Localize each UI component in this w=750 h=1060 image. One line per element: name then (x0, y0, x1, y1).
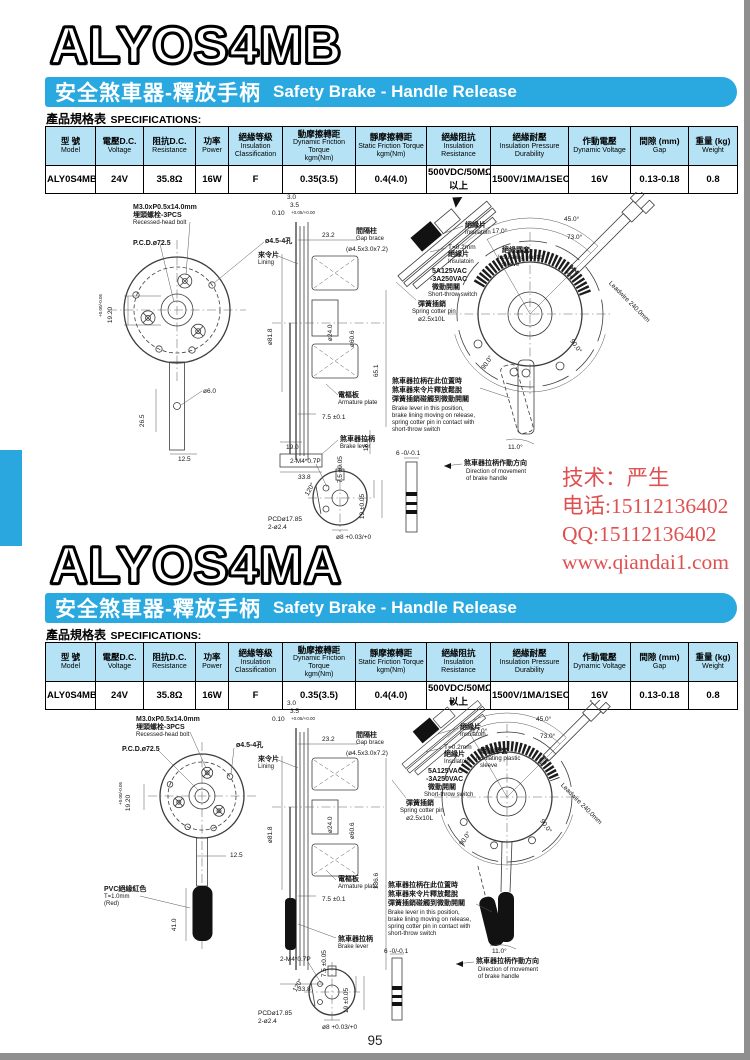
col-static-torque: 靜摩擦轉距Static Friction Torquekgm(Nm) (356, 127, 427, 166)
spec-label-zh: 產品規格表 (46, 112, 106, 126)
cell-static-torque: 0.4(4.0) (356, 166, 427, 194)
col-static-torque: 靜摩擦轉距Static Friction Torquekgm(Nm) (356, 643, 427, 682)
label-switch-rating-1: 5A125VAC (432, 268, 467, 276)
label-direction-en2: of brake handle (478, 974, 519, 981)
label-brake-lever-zh: 煞車器拉柄 (340, 436, 375, 444)
col-insulation-pressure: 絕緣耐壓Insulation Pressure Durability (491, 643, 569, 682)
cell-power: 16W (196, 166, 229, 194)
col-model: 型 號Model (46, 643, 96, 682)
tol-0-10: +0.05/+0.00 (291, 211, 315, 216)
label-sleeve-zh: 絕緣膠套 (502, 247, 530, 255)
dim-7-5: 7.5 ±0.1 (322, 896, 345, 903)
label-switch-rating-1: 5A125VAC (428, 768, 463, 776)
note-zh-2: 煞車器來令片釋放鬆脫 (388, 891, 458, 899)
label-holes: ø4.5-4孔 (265, 238, 292, 246)
col-dynamic-voltage: 作動電壓Dynamic Voltage (569, 127, 631, 166)
dim-65-1: 65.1 (373, 364, 380, 377)
dim-hub-pcd: PCDø17.85 (268, 516, 302, 523)
dim-12-5: 12.5 (230, 852, 243, 859)
page-title-alyos4mb: ALYOS4MB (50, 16, 342, 76)
note-zh-3: 彈簧插銷碰觸到微動開關 (388, 900, 465, 908)
dim-19-0: 19.0 (286, 444, 299, 451)
page-title-alyos4ma: ALYOS4MA (50, 536, 342, 596)
label-bolt-spec: M3.0xP0.5x14.0mm (136, 716, 200, 724)
col-gap: 間隙 (mm)Gap (631, 643, 689, 682)
label-armature-en: Armature plate (338, 400, 377, 407)
col-power: 功率Power (196, 127, 229, 166)
col-resistance: 阻抗D.C.Resistance (144, 127, 196, 166)
label-cotter-zh: 彈簧插銷 (406, 800, 434, 808)
tol-19-20: +0.00/-0.05 (119, 782, 124, 805)
dim-3-0: 3.0 (287, 194, 296, 201)
col-insulation-pressure: 絕緣耐壓Insulation Pressure Durability (491, 127, 569, 166)
label-switch-en: Short-throw switch (428, 292, 477, 299)
dim-26-5: 26.5 (139, 414, 146, 427)
dim-12-5: 12.5 (178, 456, 191, 463)
label-switch-en: Short-throw switch (424, 792, 473, 799)
dim-7-5: 7.5 ±0.1 (322, 414, 345, 421)
note-en-2: brake lining moving on release, (392, 413, 475, 420)
note-en-4: short-throw switch (392, 427, 440, 434)
col-insulation-class: 絕緣等級Insulation Classification (229, 127, 283, 166)
label-t02-zh: 絕緣片 (444, 751, 465, 759)
label-lining-en: Lining (258, 764, 274, 771)
spec-label2-zh: 產品規格表 (46, 628, 106, 642)
dim-hub-7-5: 7.5 ±0.05 (321, 950, 328, 977)
section-banner-2: 安全煞車器-釋放手柄 Safety Brake - Handle Release (45, 593, 737, 623)
cell-dynamic-torque: 0.35(3.5) (283, 166, 356, 194)
note-en-3: spring cotter pin in contact with (388, 924, 470, 931)
label-sleeve-en2: sleeve (502, 262, 519, 269)
page-side-tab (0, 450, 22, 546)
dim-19-20: 19.20 (107, 307, 114, 323)
label-switch-zh: 微動開關 (432, 284, 460, 292)
cell-gap: 0.13-0.18 (631, 166, 689, 194)
label-switch-rating-2: -3A250VAC (426, 776, 463, 784)
dim-60-6: ø60.6 (349, 331, 356, 348)
label-cotter-zh: 彈簧插銷 (418, 301, 446, 309)
tol-0-10: +0.05/+0.00 (291, 717, 315, 722)
contact-watermark: 技术：严生 电话:15112136402 QQ:15112136402 www.… (562, 464, 729, 576)
dim-hub-pcd: PCDø17.85 (258, 1010, 292, 1017)
label-direction-zh: 煞車器拉柄作動方向 (476, 958, 539, 966)
note-en-1: Brake lever in this position, (388, 910, 460, 917)
dim-shaft-6: 6 -0/-0.1 (396, 450, 420, 457)
label-brake-lever-en: Brake lever (338, 944, 368, 951)
dim-24-0: ø24.0 (327, 325, 334, 342)
dim-hub-m4: 2-M4*0.7P (290, 458, 321, 465)
catalog-page: ALYOS4MB 安全煞車器-釋放手柄 Safety Brake - Handl… (0, 0, 750, 1060)
note-zh-2: 煞車器來令片釋放鬆脫 (392, 387, 462, 395)
label-gap-brace-zh: 間隔柱 (356, 732, 377, 740)
dim-60-6: ø60.6 (349, 823, 356, 840)
cell-voltage: 24V (96, 166, 144, 194)
label-bolt-en: Recessed-head bolt (136, 732, 189, 739)
label-pvc-color: (Red) (104, 901, 119, 908)
label-pcd: P.C.D.ø72.5 (133, 240, 171, 248)
label-t02-en: Insulatoin (444, 759, 470, 766)
angle-17: 17.0° (472, 728, 487, 735)
label-pcd: P.C.D.ø72.5 (122, 746, 160, 754)
angle-17: 17.0° (492, 228, 507, 235)
contact-tech: 技术：严生 (562, 464, 729, 492)
angle-45: 45.0° (564, 216, 579, 223)
label-brake-lever-en: Brake lever (340, 444, 370, 451)
banner-title-en: Safety Brake - Handle Release (273, 82, 517, 102)
dim-0-10: 0.10 (272, 210, 285, 217)
label-holes: ø4.5-4孔 (236, 742, 263, 750)
label-bolt-zh: 埋頭螺栓-3PCS (133, 212, 182, 220)
label-insulation-zh: 絕緣片 (465, 222, 486, 230)
dim-cotter-size: ø2.5x10L (406, 815, 433, 822)
dim-24-0: ø24.0 (327, 817, 334, 834)
col-insulation-class: 絕緣等級Insulation Classification (229, 643, 283, 682)
angle-11: 11.0° (508, 444, 523, 451)
dim-81-8: ø81.8 (267, 329, 274, 346)
dim-hub-holes: 2-ø2.4 (258, 1018, 277, 1025)
dim-23-2: 23.2 (322, 232, 335, 239)
label-gap-brace-zh: 間隔柱 (356, 228, 377, 236)
label-lining-zh: 來令片 (258, 252, 279, 260)
dim-3-5: 3.5 (290, 202, 299, 209)
col-power: 功率Power (196, 643, 229, 682)
cell-weight: 0.8 (689, 166, 738, 194)
label-armature-zh: 電樞板 (338, 392, 359, 400)
label-lining-en: Lining (258, 260, 274, 267)
dim-81-8: ø81.8 (267, 827, 274, 844)
page-number: 95 (0, 1033, 750, 1048)
label-gap-brace-en: Gap brace (356, 236, 384, 243)
label-sleeve-en1: Insulating plastic (498, 255, 542, 262)
cell-insulation-class: F (229, 166, 283, 194)
col-dynamic-voltage: 作動電壓Dynamic Voltage (569, 643, 631, 682)
label-armature-zh: 電樞板 (338, 876, 359, 884)
section-banner: 安全煞車器-釋放手柄 Safety Brake - Handle Release (45, 77, 737, 107)
dim-hole-6: ø6.0 (203, 388, 216, 395)
label-sleeve-en1: Insulating plastic (476, 756, 520, 763)
technical-drawing-alyos4ma: M3.0xP0.5x14.0mm 埋頭螺栓-3PCS Recessed-head… (40, 700, 740, 1032)
cell-insulation-pressure: 1500V/1MA/1SEC (491, 166, 569, 194)
label-t02-en: Insulatoin (448, 259, 474, 266)
col-model: 型 號Model (46, 127, 96, 166)
label-pvc-zh: PVC絕緣紅色 (104, 886, 146, 894)
dim-3-5: 3.5 (290, 708, 299, 715)
col-resistance: 阻抗D.C.Resistance (144, 643, 196, 682)
label-direction-en2: of brake handle (466, 476, 507, 483)
note-en-3: spring cotter pin in contact with (392, 420, 474, 427)
spec-table-1: 型 號Model 電壓D.C.Voltage 阻抗D.C.Resistance … (45, 126, 738, 194)
dim-gap-brace-size: (ø4.5x3.0x7.2) (346, 246, 388, 253)
label-bolt-spec: M3.0xP0.5x14.0mm (133, 204, 197, 212)
dim-shaft-6: 6 -0/-0.1 (384, 948, 408, 955)
spec-label2-en: SPECIFICATIONS: (110, 630, 201, 642)
note-zh-1: 煞車器拉柄在此位置時 (392, 378, 462, 386)
col-voltage: 電壓D.C.Voltage (96, 643, 144, 682)
col-gap: 間隙 (mm)Gap (631, 127, 689, 166)
banner-title-zh: 安全煞車器-釋放手柄 (55, 77, 261, 107)
label-insulation-en: Insulatoin (465, 230, 491, 237)
label-sleeve-zh: 絕緣膠套 (480, 748, 508, 756)
dim-cotter-size: ø2.5x10L (418, 316, 445, 323)
contact-qq: QQ:15112136402 (562, 520, 729, 548)
banner2-title-en: Safety Brake - Handle Release (273, 598, 517, 618)
label-brake-lever-zh: 煞車器拉柄 (338, 936, 373, 944)
dim-hub-holes: 2-ø2.4 (268, 524, 287, 531)
dim-hub-bore: ø8 +0.03/+0 (322, 1024, 357, 1031)
label-switch-rating-2: -3A250VAC (430, 276, 467, 284)
note-en-2: brake lining moving on release, (388, 917, 471, 924)
col-dynamic-torque: 動摩擦轉距Dynamic Friction Torquekgm(Nm) (283, 127, 356, 166)
dim-0-10: 0.10 (272, 716, 285, 723)
label-lining-zh: 來令片 (258, 756, 279, 764)
page-edge-right (744, 0, 750, 1060)
label-bolt-en: Recessed-head bolt (133, 220, 186, 227)
cell-insulation-resistance: 500VDC/50MΩ以上 (427, 166, 491, 194)
cell-resistance: 35.8Ω (144, 166, 196, 194)
label-pvc-thickness: T=1.0mm (104, 894, 130, 901)
tol-19-20: +0.00/-0.05 (99, 294, 104, 317)
angle-73: 73.0° (540, 733, 555, 740)
dim-19-20: 19.20 (125, 795, 132, 811)
label-armature-en: Armature plate (338, 884, 377, 891)
label-bolt-zh: 埋頭螺栓-3PCS (136, 724, 185, 732)
label-sleeve-en2: sleeve (480, 763, 497, 770)
spec-label-en: SPECIFICATIONS: (110, 114, 201, 126)
label-gap-brace-en: Gap brace (356, 740, 384, 747)
dim-hub-7-5: 7.5 ±0.05 (337, 456, 344, 483)
angle-11: 11.0° (492, 948, 507, 955)
cell-dynamic-voltage: 16V (569, 166, 631, 194)
note-zh-3: 彈簧插銷碰觸到微動開關 (392, 396, 469, 404)
dim-gap-brace-size: (ø4.5x3.0x7.2) (346, 750, 388, 757)
dim-33-8: 33.8 (298, 474, 311, 481)
note-zh-1: 煞車器拉柄在此位置時 (388, 882, 458, 890)
label-direction-en1: Direction of movement (478, 967, 538, 974)
col-voltage: 電壓D.C.Voltage (96, 127, 144, 166)
cell-model: ALY0S4MB (46, 166, 96, 194)
label-switch-zh: 微動開關 (428, 784, 456, 792)
contact-phone: 电话:15112136402 (562, 492, 729, 520)
col-dynamic-torque: 動摩擦轉距Dynamic Friction Torquekgm(Nm) (283, 643, 356, 682)
note-en-1: Brake lever in this position, (392, 406, 464, 413)
banner2-title-zh: 安全煞車器-釋放手柄 (55, 593, 261, 623)
col-insulation-resistance: 絕緣阻抗Insulation Resistance (427, 127, 491, 166)
dim-hub-19: 19 ±0.05 (359, 494, 366, 519)
col-insulation-resistance: 絕緣阻抗Insulation Resistance (427, 643, 491, 682)
label-t02-zh: 絕緣片 (448, 251, 469, 259)
col-weight: 重量 (kg)Weight (689, 643, 738, 682)
dim-hub-19: 19 ±0.05 (343, 988, 350, 1013)
note-en-4: short-throw switch (388, 931, 436, 938)
label-direction-zh: 煞車器拉柄作動方向 (464, 460, 527, 468)
dim-3-0: 3.0 (287, 700, 296, 707)
page-edge-bottom (0, 1053, 750, 1060)
contact-website: www.qiandai1.com (562, 548, 729, 576)
angle-73: 73.0° (567, 234, 582, 241)
label-direction-en1: Direction of movement (466, 469, 526, 476)
label-cotter-en: Spring cotter pin (400, 808, 444, 815)
col-weight: 重量 (kg)Weight (689, 127, 738, 166)
dim-41-0: 41.0 (171, 918, 178, 931)
angle-45: 45.0° (536, 716, 551, 723)
dim-23-2: 23.2 (322, 736, 335, 743)
label-cotter-en: Spring cotter pin (412, 309, 456, 316)
dim-hub-m4: 2-M4*0.7P (280, 956, 311, 963)
